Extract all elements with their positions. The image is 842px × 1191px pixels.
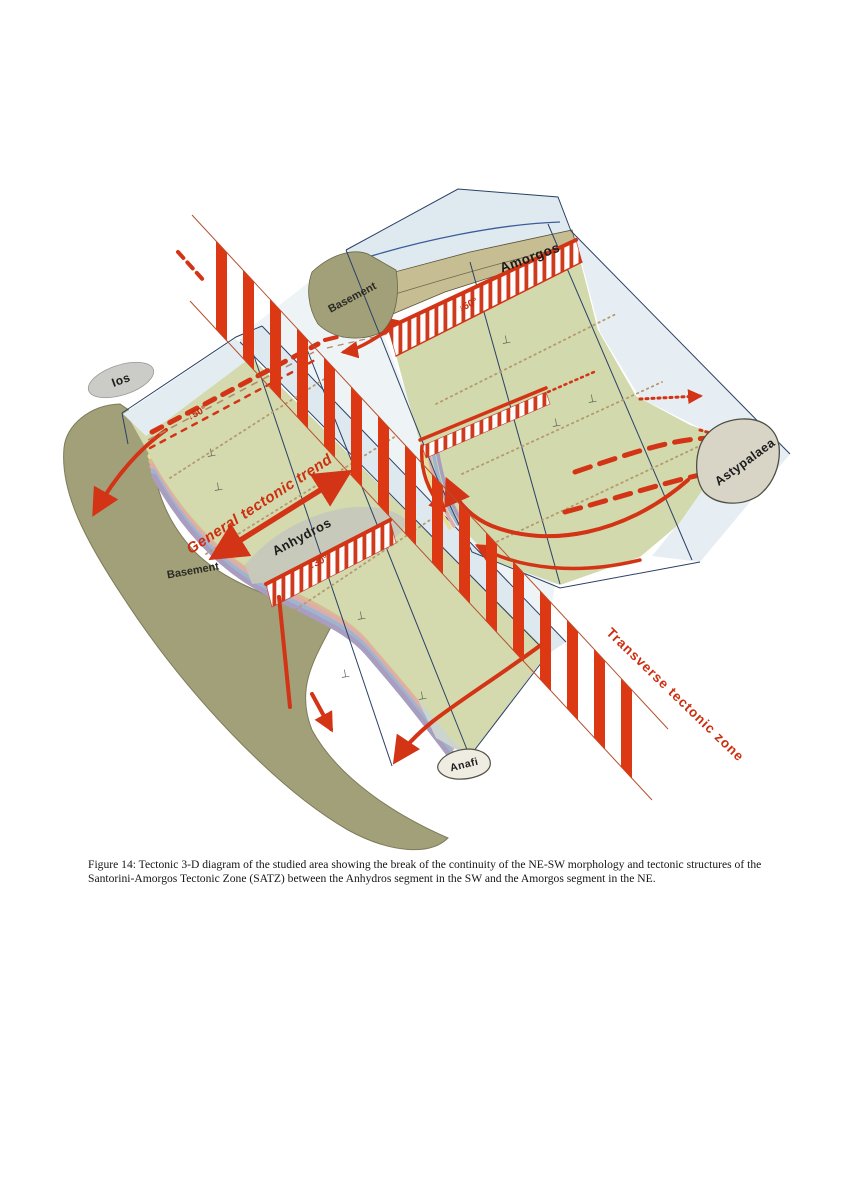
transverse-zone-end-dashes xyxy=(178,252,205,282)
tectonic-3d-diagram: ⊥ ⊥ ⊥ ⊥ ⊥ Ios Anafi Anhydros Basement ↓5… xyxy=(0,0,842,1191)
bedding-symbol: ⊥ xyxy=(339,667,351,680)
figure-caption: Figure 14: Tectonic 3-D diagram of the s… xyxy=(88,858,772,886)
bedding-symbol: ⊥ xyxy=(586,392,598,405)
ios-island: Ios xyxy=(84,355,158,405)
bedding-symbol: ⊥ xyxy=(416,689,428,702)
fault-trace-diagonal xyxy=(312,694,331,729)
document-page: ⊥ ⊥ ⊥ ⊥ ⊥ Ios Anafi Anhydros Basement ↓5… xyxy=(0,0,842,1191)
bedding-symbol: ⊥ xyxy=(212,480,224,493)
astypalaea-island: Astypalaea xyxy=(697,419,780,503)
bedding-symbol: ⊥ xyxy=(500,333,512,346)
bedding-symbol: ⊥ xyxy=(550,416,562,429)
bedding-symbol: ⊥ xyxy=(205,446,217,459)
bedding-symbol: ⊥ xyxy=(355,609,367,622)
